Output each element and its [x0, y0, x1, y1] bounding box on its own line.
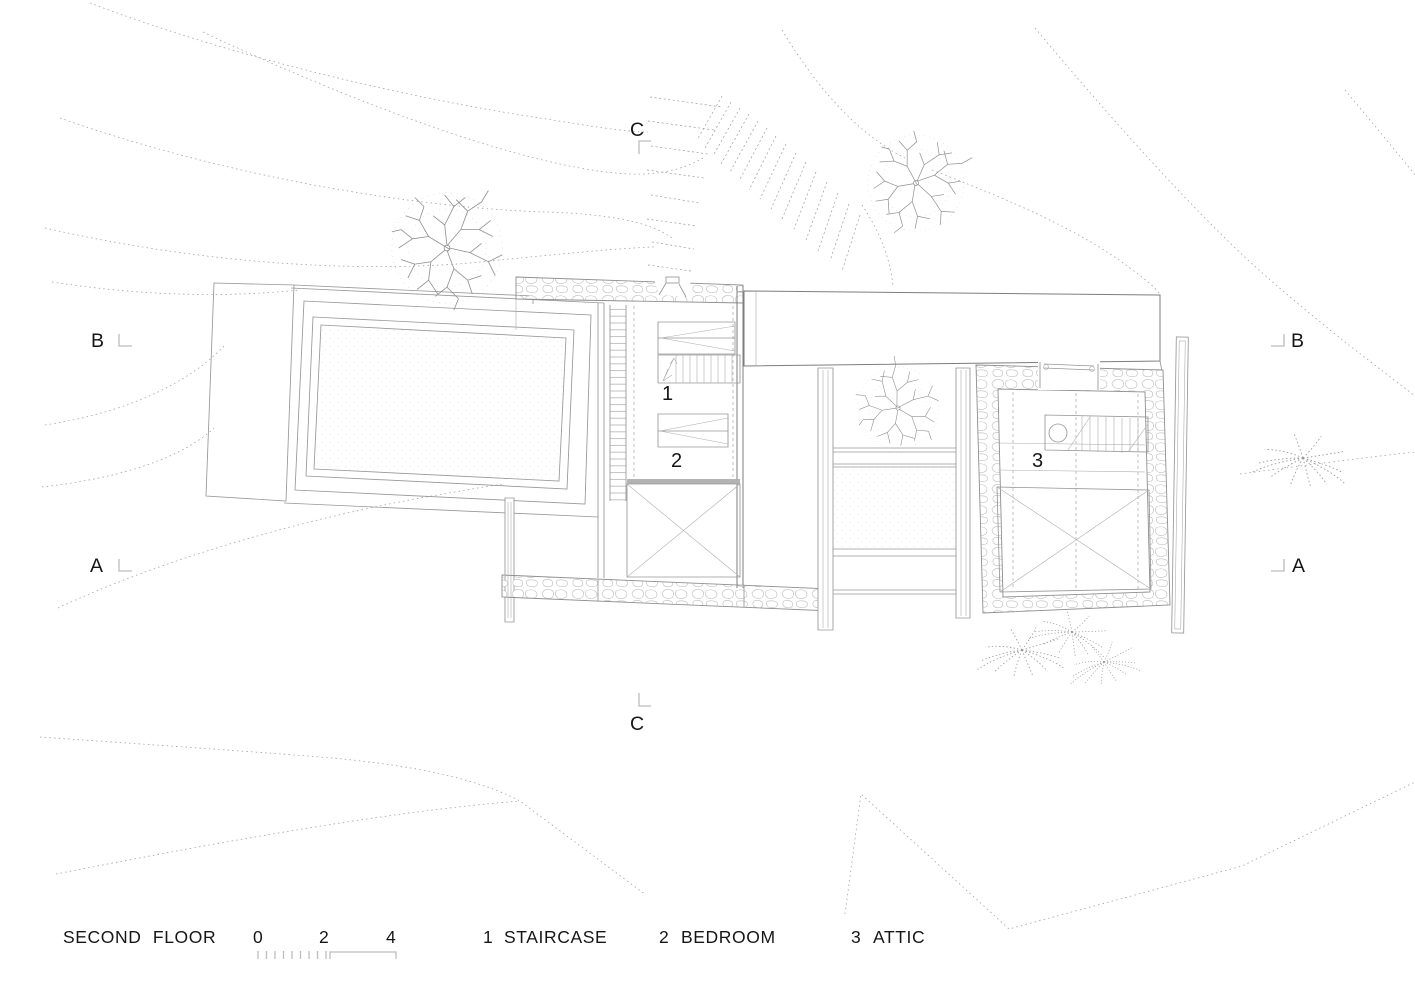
north-wall-opening — [666, 277, 679, 283]
section-bracket-icon — [1271, 334, 1284, 346]
legend-label-bedroom: BEDROOM — [681, 927, 776, 947]
attic-block — [976, 358, 1170, 613]
courtyard-east-wall — [956, 368, 970, 618]
legend-number-3: 3 — [851, 927, 861, 947]
section-bracket-icon — [639, 141, 651, 154]
section-bracket-icon — [119, 334, 132, 346]
section-marker-b-right: B — [1271, 330, 1304, 352]
section-markers: C C B B A A — [90, 119, 1305, 735]
section-marker-c-top: C — [630, 119, 651, 154]
scale-bar: 0 2 4 — [253, 927, 396, 959]
section-bracket-icon — [1271, 559, 1284, 571]
stair-pole — [1049, 424, 1067, 442]
legend-label-staircase: STAIRCASE — [504, 927, 607, 947]
west-wing-and-pool-deck — [206, 283, 604, 622]
section-marker-a-right: A — [1271, 555, 1305, 577]
section-bracket-icon — [119, 559, 132, 571]
skylight-window-2 — [658, 414, 728, 447]
west-wing-outline — [206, 283, 294, 501]
roof-beam — [627, 479, 740, 484]
scale-tick-0: 0 — [253, 927, 263, 947]
section-bracket-icon — [639, 693, 651, 706]
legend: 1 STAIRCASE 2 BEDROOM 3 ATTIC — [483, 927, 925, 947]
title-block: SECOND FLOOR 0 2 4 1 STAIRCASE 2 BEDROOM… — [63, 927, 925, 959]
section-label-c-top: C — [630, 119, 644, 141]
skylight-window-1 — [658, 322, 735, 354]
legend-label-attic: ATTIC — [873, 927, 925, 947]
north-stone-wall — [516, 277, 743, 303]
section-label-a-right: A — [1292, 555, 1305, 577]
legend-number-2: 2 — [659, 927, 669, 947]
section-marker-b-left: B — [91, 330, 132, 352]
legend-number-1: 1 — [483, 927, 493, 947]
section-marker-c-bottom: C — [630, 693, 651, 735]
tree — [847, 116, 982, 254]
courtyard — [818, 368, 970, 630]
void-with-cross — [627, 484, 740, 577]
section-label-b-left: B — [91, 330, 104, 352]
south-stone-wall — [502, 575, 832, 611]
wall-end-piece — [505, 498, 514, 622]
attic-void-with-cross — [997, 487, 1151, 592]
shrub — [1065, 638, 1142, 691]
scale-bar-bracket — [330, 952, 396, 959]
section-label-a-left: A — [90, 555, 103, 577]
drawing-title: SECOND FLOOR — [63, 927, 216, 947]
room-label-bedroom: 2 — [671, 450, 682, 472]
attic-stone-walls — [976, 365, 1170, 613]
section-label-b-right: B — [1291, 330, 1304, 352]
room-label-staircase: 1 — [662, 383, 673, 405]
staircase — [658, 355, 740, 383]
east-wall-strip — [1172, 337, 1189, 633]
floor-plan-drawing: C C B B A A 1 2 3 SECOND FLOOR — [0, 0, 1415, 1000]
scale-tick-4: 4 — [386, 927, 396, 947]
tree — [839, 349, 958, 469]
site-contour-lines — [40, 3, 1415, 929]
shrub — [977, 628, 1064, 678]
section-label-c-bottom: C — [630, 713, 644, 735]
section-marker-a-left: A — [90, 555, 132, 577]
louver-strip — [610, 305, 626, 501]
scale-tick-2: 2 — [319, 927, 329, 947]
scale-bar-ticks — [258, 951, 326, 959]
attic-staircase — [1045, 415, 1148, 453]
floor-plan-canvas: C C B B A A 1 2 3 SECOND FLOOR — [0, 0, 1415, 1000]
shrub — [1251, 428, 1351, 494]
room-label-attic: 3 — [1032, 450, 1043, 472]
slope-hatch — [647, 96, 860, 271]
courtyard-west-wall — [818, 368, 833, 630]
